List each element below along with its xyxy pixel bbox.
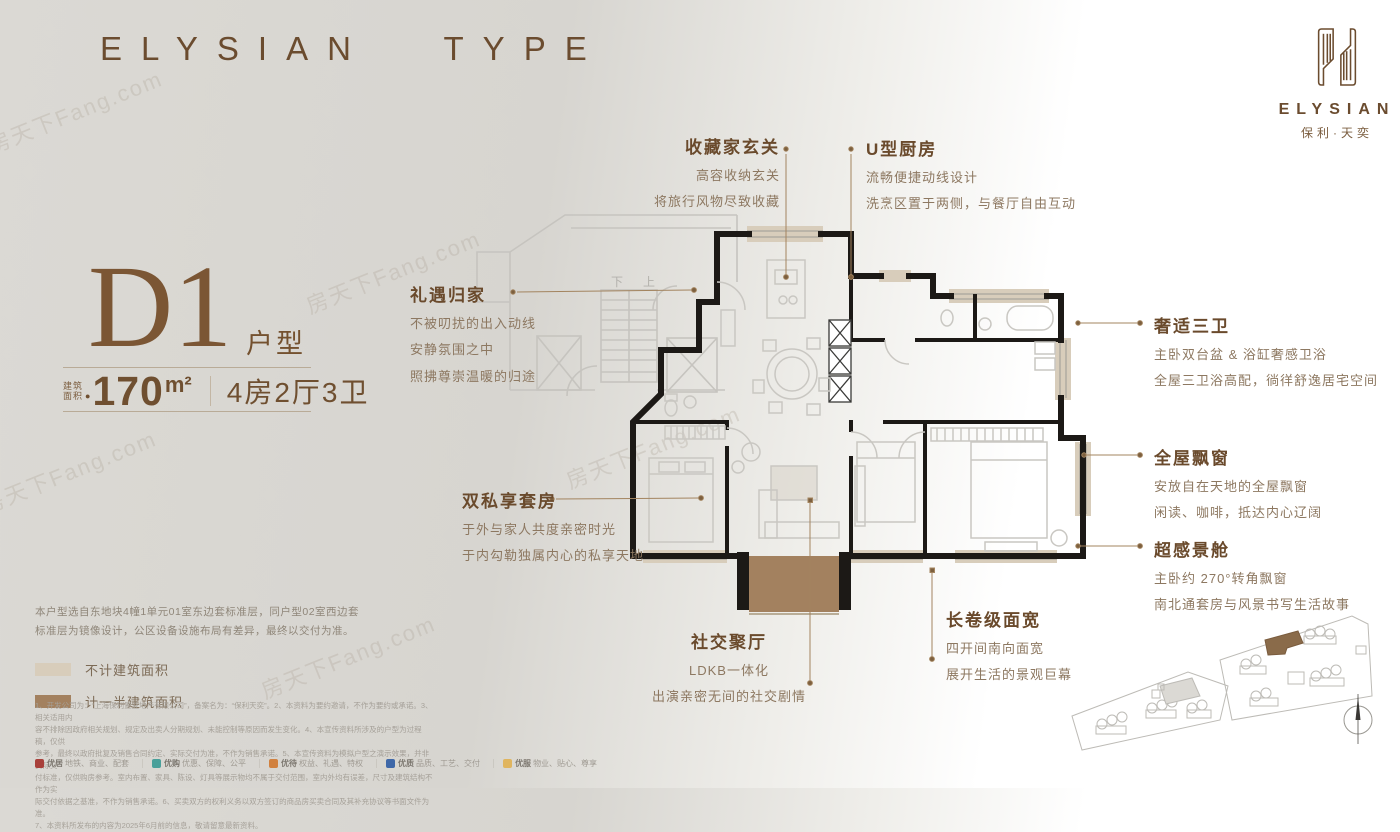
vertical-divider [210, 376, 211, 406]
area-unit: m² [165, 372, 192, 398]
floor-plan: 下 上 [415, 190, 1145, 670]
annotation-line: 主卧双台盆 & 浴缸奢感卫浴 [1154, 347, 1378, 363]
annotation-title: 全屋飘窗 [1154, 444, 1322, 469]
fine-print-line: 付标准，仅供购房参考。室内布置、家具、陈设、灯具等展示物均不属于交付范围，室内外… [35, 772, 433, 796]
stair-up-label: 上 [643, 275, 655, 289]
area-label: 建筑 面积 [63, 381, 83, 402]
disclaimer-text: 本户型选自东地块4幢1单元01室东边套标准层，同户型02室西边套标准层为镜像设计… [35, 603, 367, 641]
unit-layout: 4房2厅3卫 [227, 371, 370, 411]
brand-title: ELYSIAN TYPE [100, 30, 606, 68]
footer-badge-icon [503, 759, 512, 768]
footer-item-name: 优居 [47, 758, 63, 769]
annotation-line: 安静氛围之中 [410, 342, 536, 358]
annotation-line: 照拂尊崇温暖的归途 [410, 369, 536, 385]
annotation-title: 长卷级面宽 [946, 606, 1072, 631]
annotation-title: 社交聚厅 [652, 628, 806, 653]
annotation-private-suites: 双私享套房 于外与家人共度亲密时光 于内勾勒独属内心的私享天地 [462, 487, 644, 565]
footer-item: 优购 优惠、保障、公平 [152, 758, 246, 769]
footer-item: 优待 权益、礼遇、特权 [269, 758, 363, 769]
footer-separator: ｜ [372, 757, 381, 770]
unit-type-suffix: 户型 [246, 322, 306, 361]
annotation-line: 将旅行风物尽致收藏 [654, 194, 780, 210]
legend-swatch-no-area [35, 663, 71, 676]
annotation-title: 双私享套房 [462, 487, 644, 512]
footer-item: 优质 品质、工艺、交付 [386, 758, 480, 769]
watermark: 房天下Fang.com [0, 61, 167, 160]
annotation-homecoming: 礼遇归家 不被叨扰的出入动线 安静氛围之中 照拂尊崇温暖的归途 [410, 281, 536, 385]
unit-area-row: 建筑 面积 ● 170 m² 4房2厅3卫 [63, 371, 369, 411]
site-plan [1060, 598, 1400, 783]
divider-line [63, 411, 311, 412]
footer-item: 优服 物业、贴心、尊享 [503, 758, 597, 769]
footer-links: 优居 地铁、商业、配套 ｜ 优购 优惠、保障、公平 ｜ 优待 权益、礼遇、特权 … [35, 757, 601, 770]
footer-badge-icon [386, 759, 395, 768]
area-dot: ● [85, 391, 90, 401]
annotation-u-kitchen: U型厨房 流畅便捷动线设计 洗烹区置于两侧，与餐厅自由互动 [866, 135, 1076, 213]
fine-print-line: 1、开发公司为：“上海保利置业地产有限公司”，备案名为：“保利天奕”。2、本资料… [35, 700, 433, 724]
compass-icon [1344, 694, 1372, 744]
annotation-line: 闲读、咖啡，抵达内心辽阔 [1154, 505, 1322, 521]
logo-name-cn: 保利·天奕 [1272, 124, 1400, 141]
annotation-line: 于外与家人共度亲密时光 [462, 522, 644, 538]
footer-separator: ｜ [489, 757, 498, 770]
logo-gate-icon [1308, 26, 1366, 88]
annotation-title: 礼遇归家 [410, 281, 536, 306]
footer-badge-icon [35, 759, 44, 768]
annotation-line: 全屋三卫浴高配，徜徉舒逸居宅空间 [1154, 373, 1378, 389]
shaft-boxes [829, 320, 851, 402]
fine-print-line: 7、本资料所发布的内容为2025年6月前的信息，敬请留意最新资料。 [35, 820, 433, 832]
annotation-line: 出演亲密无间的社交剧情 [652, 689, 806, 705]
footer-item-name: 优质 [398, 758, 414, 769]
footer-item-sub: 品质、工艺、交付 [416, 758, 480, 769]
footer-item-name: 优服 [515, 758, 531, 769]
site-buildings-right [1240, 626, 1366, 706]
annotation-title: 奢适三卫 [1154, 312, 1378, 337]
annotation-line: 洗烹区置于两侧，与餐厅自由互动 [866, 196, 1076, 212]
footer-item: 优居 地铁、商业、配套 [35, 758, 129, 769]
annotation-bay-windows: 全屋飘窗 安放自在天地的全屋飘窗 闲读、咖啡，抵达内心辽阔 [1154, 444, 1322, 522]
annotation-line: LDKB一体化 [652, 663, 806, 679]
footer-item-name: 优购 [164, 758, 180, 769]
annotation-collector-foyer: 收藏家玄关 高容收纳玄关 将旅行风物尽致收藏 [654, 133, 780, 211]
annotation-line: 主卧约 270°转角飘窗 [1154, 571, 1350, 587]
logo-name-en: ELYSIAN [1272, 101, 1400, 119]
fine-print-line: 际交付依据之基准，不作为销售承诺。6、买卖双方的权利义务以双方签订的商品房买卖合… [35, 796, 433, 820]
footer-separator: ｜ [138, 757, 147, 770]
annotation-line: 展开生活的景观巨幕 [946, 667, 1072, 683]
legend-label: 不计建筑面积 [85, 660, 169, 679]
legend-row: 不计建筑面积 [35, 656, 183, 682]
annotation-title: 收藏家玄关 [654, 133, 780, 158]
footer-badge-icon [269, 759, 278, 768]
annotation-wide-frontage: 长卷级面宽 四开间南向面宽 展开生活的景观巨幕 [946, 606, 1072, 684]
watermark: 房天下Fang.com [0, 421, 161, 520]
annotation-line: 高容收纳玄关 [654, 168, 780, 184]
area-label-line2: 面积 [63, 391, 83, 401]
annotation-line: 四开间南向面宽 [946, 641, 1072, 657]
footer-item-sub: 地铁、商业、配套 [65, 758, 129, 769]
site-highlighted-building [1265, 631, 1303, 655]
footer-item-sub: 物业、贴心、尊享 [533, 758, 597, 769]
annotation-title: U型厨房 [866, 135, 1076, 160]
area-value: 170 [92, 368, 163, 415]
annotation-social-hall: 社交聚厅 LDKB一体化 出演亲密无间的社交剧情 [652, 628, 806, 706]
annotation-line: 不被叨扰的出入动线 [410, 316, 536, 332]
footer-item-name: 优待 [281, 758, 297, 769]
annotation-title: 超感景舱 [1154, 536, 1350, 561]
footer-separator: ｜ [255, 757, 264, 770]
footer-badge-icon [152, 759, 161, 768]
brand-logo: ELYSIAN 保利·天奕 [1272, 26, 1400, 141]
annotation-line: 于内勾勒独属内心的私享天地 [462, 548, 644, 564]
fine-print-line: 容不排除因政府相关规划、规定及出卖人分期规划、未能控制等原因而发生变化。4、本宣… [35, 724, 433, 748]
area-label-line1: 建筑 [63, 381, 83, 391]
footer-item-sub: 优惠、保障、公平 [182, 758, 246, 769]
annotation-line: 流畅便捷动线设计 [866, 170, 1076, 186]
unit-type-code: D1 [88, 248, 232, 366]
annotation-three-baths: 奢适三卫 主卧双台盆 & 浴缸奢感卫浴 全屋三卫浴高配，徜徉舒逸居宅空间 [1154, 312, 1378, 390]
footer-item-sub: 权益、礼遇、特权 [299, 758, 363, 769]
annotation-line: 安放自在天地的全屋飘窗 [1154, 479, 1322, 495]
outer-walls [633, 234, 1083, 556]
balcony [737, 552, 851, 614]
stair-down-label: 下 [611, 275, 623, 289]
